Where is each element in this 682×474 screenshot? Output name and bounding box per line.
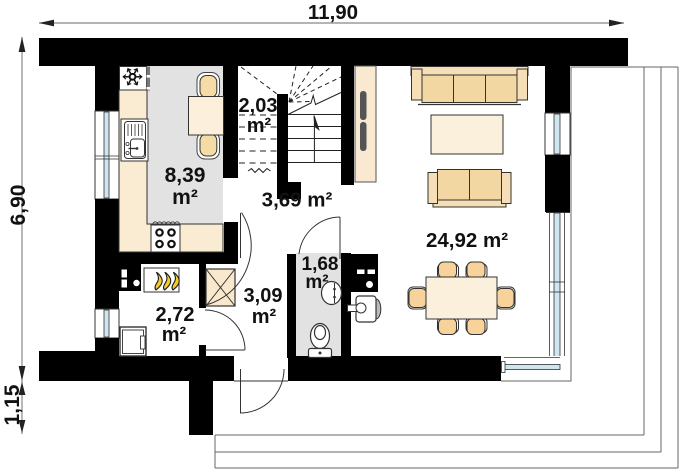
svg-text:11,90: 11,90 xyxy=(308,1,358,24)
svg-text:m²: m² xyxy=(247,115,272,137)
svg-text:2,03: 2,03 xyxy=(239,95,278,117)
svg-text:24,92 m²: 24,92 m² xyxy=(426,229,508,252)
svg-text:m²: m² xyxy=(162,324,187,346)
svg-text:m²: m² xyxy=(305,272,328,293)
svg-text:3,69 m²: 3,69 m² xyxy=(262,189,333,212)
svg-text:2,72: 2,72 xyxy=(156,304,195,326)
svg-text:1,15: 1,15 xyxy=(1,384,24,425)
svg-text:m²: m² xyxy=(252,306,277,328)
svg-text:m²: m² xyxy=(172,186,198,209)
svg-text:8,39: 8,39 xyxy=(165,164,206,187)
svg-text:3,09: 3,09 xyxy=(244,285,283,307)
svg-text:6,90: 6,90 xyxy=(7,185,30,226)
